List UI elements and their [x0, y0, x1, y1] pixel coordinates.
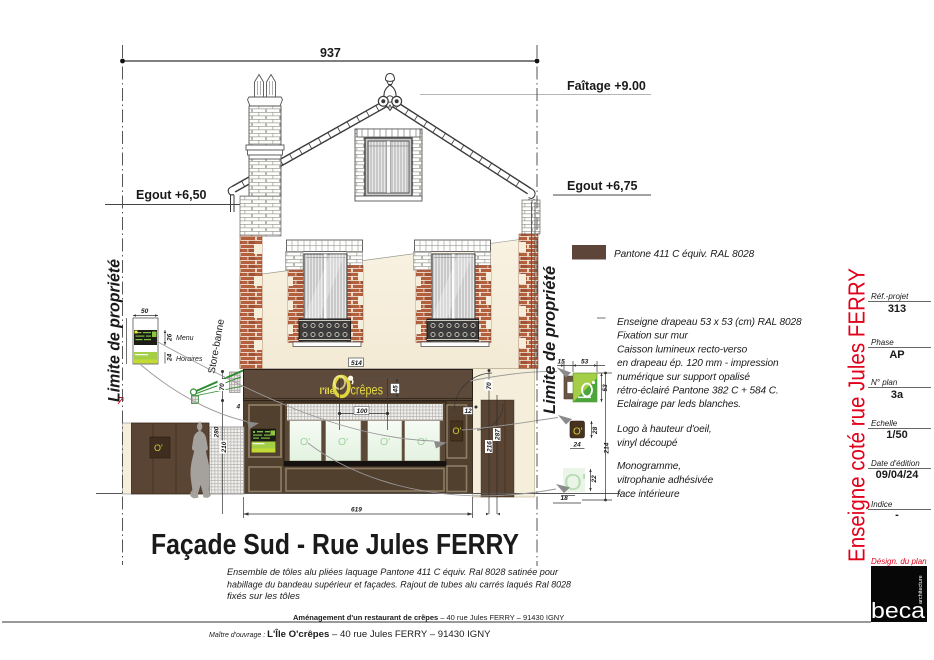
svg-text:en drapeau ép. 120 mm - impres: en drapeau ép. 120 mm - impression — [617, 358, 779, 369]
svg-text:vitrophanie adhésivée: vitrophanie adhésivée — [617, 475, 714, 486]
svg-text:210: 210 — [221, 441, 228, 453]
svg-text:280: 280 — [214, 426, 221, 438]
svg-text:Désign. du plan: Désign. du plan — [871, 557, 927, 566]
svg-text:26: 26 — [167, 333, 174, 342]
svg-text:45: 45 — [393, 385, 400, 394]
svg-text:-: - — [895, 509, 899, 521]
svg-text:O': O' — [154, 443, 163, 453]
svg-text:70: 70 — [486, 382, 493, 390]
svg-text:O': O' — [417, 436, 427, 448]
svg-text:1/50: 1/50 — [886, 429, 907, 441]
svg-text:18: 18 — [561, 495, 569, 502]
svg-text:numérique sur support opalisé: numérique sur support opalisé — [617, 372, 750, 383]
svg-text:Pantone 411 C équiv. RAL 8028: Pantone 411 C équiv. RAL 8028 — [614, 249, 755, 260]
svg-text:514: 514 — [351, 360, 362, 367]
svg-text:O': O' — [564, 469, 586, 495]
svg-text:50: 50 — [141, 308, 149, 315]
svg-text:vinyl découpé: vinyl découpé — [617, 438, 678, 449]
svg-text:Logo à hauteur d'oeil,: Logo à hauteur d'oeil, — [617, 424, 712, 435]
svg-text:fixés sur les tôles: fixés sur les tôles — [227, 591, 300, 602]
svg-text:Horaires: Horaires — [176, 356, 203, 363]
svg-text:O': O' — [573, 427, 583, 438]
svg-text:habillage du bandeau supérieur: habillage du bandeau supérieur et façade… — [227, 580, 572, 591]
svg-text:Menu: Menu — [176, 335, 194, 342]
svg-text:O': O' — [453, 426, 462, 436]
svg-text:Phase: Phase — [871, 338, 894, 347]
svg-text:Eclairage par leds blanches.: Eclairage par leds blanches. — [617, 399, 741, 410]
svg-text:crêpes: crêpes — [351, 382, 384, 398]
svg-text:Caisson lumineux recto-verso: Caisson lumineux recto-verso — [617, 344, 748, 355]
svg-text:Egout +6,75: Egout +6,75 — [567, 179, 638, 193]
svg-text:100: 100 — [357, 408, 368, 415]
svg-text:Enseigne drapeau 53 x 53 (cm): Enseigne drapeau 53 x 53 (cm) RAL 8028 — [617, 317, 802, 328]
svg-text:3a: 3a — [891, 389, 904, 401]
svg-text:Monogramme,: Monogramme, — [617, 461, 681, 472]
svg-text:N° plan: N° plan — [871, 378, 898, 387]
svg-text:4: 4 — [236, 404, 241, 411]
svg-text:Limite de propriété: Limite de propriété — [106, 259, 124, 402]
svg-text:Ensemble de tôles alu pliées l: Ensemble de tôles alu pliées laquage Pan… — [227, 567, 559, 578]
svg-text:313: 313 — [888, 303, 906, 315]
svg-text:O': O' — [300, 436, 310, 448]
svg-text:15: 15 — [558, 359, 566, 366]
svg-text:Date d'édition: Date d'édition — [871, 459, 920, 468]
svg-text:Limite de propriété: Limite de propriété — [541, 266, 559, 414]
svg-text:Façade Sud - Rue Jules FERRY: Façade Sud - Rue Jules FERRY — [151, 529, 519, 561]
svg-text:Egout +6,50: Egout +6,50 — [136, 188, 207, 202]
svg-text:28: 28 — [592, 426, 599, 435]
svg-text:Echelle: Echelle — [871, 419, 898, 428]
svg-text:Indice: Indice — [871, 500, 893, 509]
svg-text:53: 53 — [581, 359, 589, 366]
svg-text:12: 12 — [465, 408, 473, 415]
svg-text:rétro-éclairé Pantone 382 C +: rétro-éclairé Pantone 382 C + 584 C. — [617, 386, 779, 397]
svg-text:216: 216 — [487, 441, 494, 453]
svg-text:937: 937 — [320, 46, 341, 60]
svg-text:214: 214 — [604, 442, 611, 454]
svg-text:Faîtage +9.00: Faîtage +9.00 — [567, 79, 646, 93]
svg-text:O': O' — [338, 436, 348, 448]
svg-text:AP: AP — [889, 349, 904, 361]
svg-text:22: 22 — [591, 475, 598, 484]
svg-text:619: 619 — [351, 507, 362, 514]
svg-text:O': O' — [380, 436, 390, 448]
svg-text:Fixation sur mur: Fixation sur mur — [617, 331, 688, 342]
svg-text:287: 287 — [495, 429, 502, 441]
svg-text:Aménagement d'un restaurant de: Aménagement d'un restaurant de crêpes – … — [293, 613, 564, 622]
svg-text:70: 70 — [219, 383, 226, 391]
svg-text:24: 24 — [573, 442, 582, 449]
svg-text:architecture: architecture — [918, 575, 924, 604]
svg-text:Enseigne coté rue Jules FERRY: Enseigne coté rue Jules FERRY — [844, 268, 870, 562]
svg-text:face intérieure: face intérieure — [617, 489, 680, 500]
svg-text:Réf.-projet: Réf.-projet — [871, 292, 909, 301]
svg-text:24: 24 — [167, 353, 174, 362]
svg-text:09/04/24: 09/04/24 — [876, 469, 920, 481]
